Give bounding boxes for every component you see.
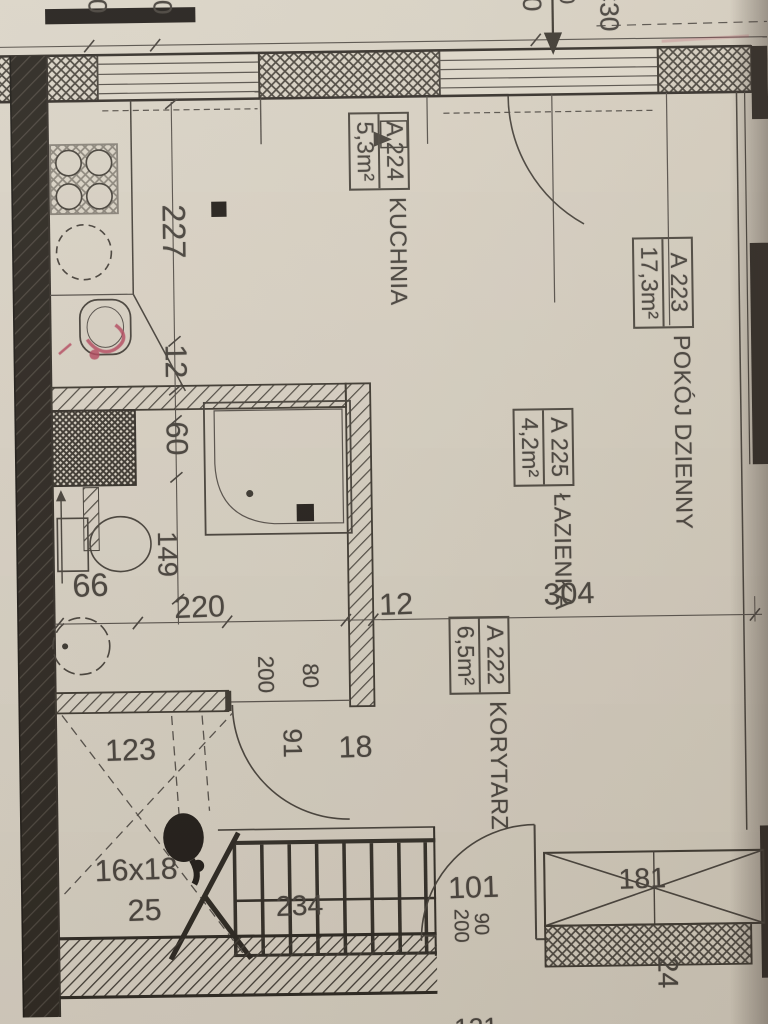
- dim-234: 234: [275, 890, 323, 921]
- room-name: KUCHNIA: [385, 197, 412, 306]
- dim-40-partial: 40: [518, 0, 546, 12]
- dim-c30-partial: C30: [595, 0, 623, 32]
- dim-101: 101: [448, 871, 500, 904]
- room-code-box: A 223 17,3m²: [632, 237, 694, 329]
- up-arrow: [56, 490, 66, 501]
- dim-200-b: 200: [450, 909, 472, 943]
- shower-symbol: [204, 401, 352, 535]
- room-name: POKÓJ DZIENNY: [669, 335, 697, 530]
- room-area: 4,2m²: [515, 410, 545, 484]
- room-name: KORYTARZ: [485, 701, 512, 830]
- top-dimension-line: [0, 37, 767, 48]
- stairs-formula: 16x18: [94, 853, 178, 888]
- top-exterior-wall: [0, 0, 768, 120]
- dim-200-a: 200: [253, 656, 277, 694]
- washbasin-symbol: [53, 617, 111, 675]
- bottom-exterior-wall: [59, 934, 437, 998]
- bathroom-door-arc: [232, 703, 349, 820]
- radiator-symbol: [83, 488, 99, 551]
- dim-30-partial-b: 30: [148, 0, 176, 15]
- dim-24: 24: [653, 957, 683, 989]
- dim-91: 91: [278, 728, 306, 758]
- balcony-door-symbol: [439, 47, 658, 96]
- right-exterior-wall: [736, 46, 768, 978]
- dim-60: 60: [160, 421, 192, 455]
- dim-181: 181: [618, 863, 666, 894]
- door-leaf: [535, 825, 537, 940]
- dim-123: 123: [105, 734, 157, 767]
- shower-drain: [246, 490, 253, 497]
- room-code-box: A 222 6,5m²: [449, 616, 511, 695]
- dim-227: 227: [156, 204, 191, 259]
- room-code-box: A 225 4,2m²: [513, 408, 575, 487]
- room-area: 17,3m²: [634, 239, 665, 326]
- dim-66: 66: [72, 568, 109, 603]
- column-marker: [211, 202, 226, 217]
- room-code: A 225: [544, 410, 572, 484]
- dim-80: 80: [298, 663, 322, 688]
- room-label-pokoj-dzienny: A 223 17,3m² POKÓJ DZIENNY: [632, 237, 697, 531]
- dim-12-a: 12: [159, 344, 191, 378]
- room-code: A 222: [480, 618, 508, 692]
- room-label-korytarz: A 222 6,5m² KORYTARZ: [449, 616, 513, 831]
- dim-12-b: 12: [379, 588, 414, 621]
- floorplan-drawing: A 224 5,3m² KUCHNIA A 223 17,3m² POKÓJ D…: [0, 0, 768, 1024]
- dim-121-partial: 121: [454, 1013, 499, 1024]
- room-code-box: A 224 5,3m²: [348, 112, 410, 191]
- duct-shaft: [52, 410, 136, 486]
- dim-90: 90: [470, 912, 491, 935]
- room-label-kuchnia: A 224 5,3m² KUCHNIA: [348, 112, 411, 307]
- appliance-dashed-circle: [56, 224, 112, 280]
- dim-30-partial-a: 30: [83, 0, 111, 14]
- floorplan-page: A 224 5,3m² KUCHNIA A 223 17,3m² POKÓJ D…: [0, 0, 768, 1024]
- column-marker: [297, 504, 314, 521]
- dim-18: 18: [338, 731, 373, 764]
- dim-220: 220: [174, 591, 226, 624]
- dim-149: 149: [153, 531, 182, 577]
- room-area: 6,5m²: [451, 618, 481, 692]
- room-code: A 223: [663, 239, 692, 326]
- dim-0-partial: 0: [555, 0, 578, 4]
- dim-25: 25: [127, 894, 162, 927]
- room-area: 5,3m²: [350, 114, 380, 188]
- top-door-arc: [508, 95, 584, 225]
- room-code: A 224: [380, 114, 408, 188]
- dim-304: 304: [543, 578, 595, 611]
